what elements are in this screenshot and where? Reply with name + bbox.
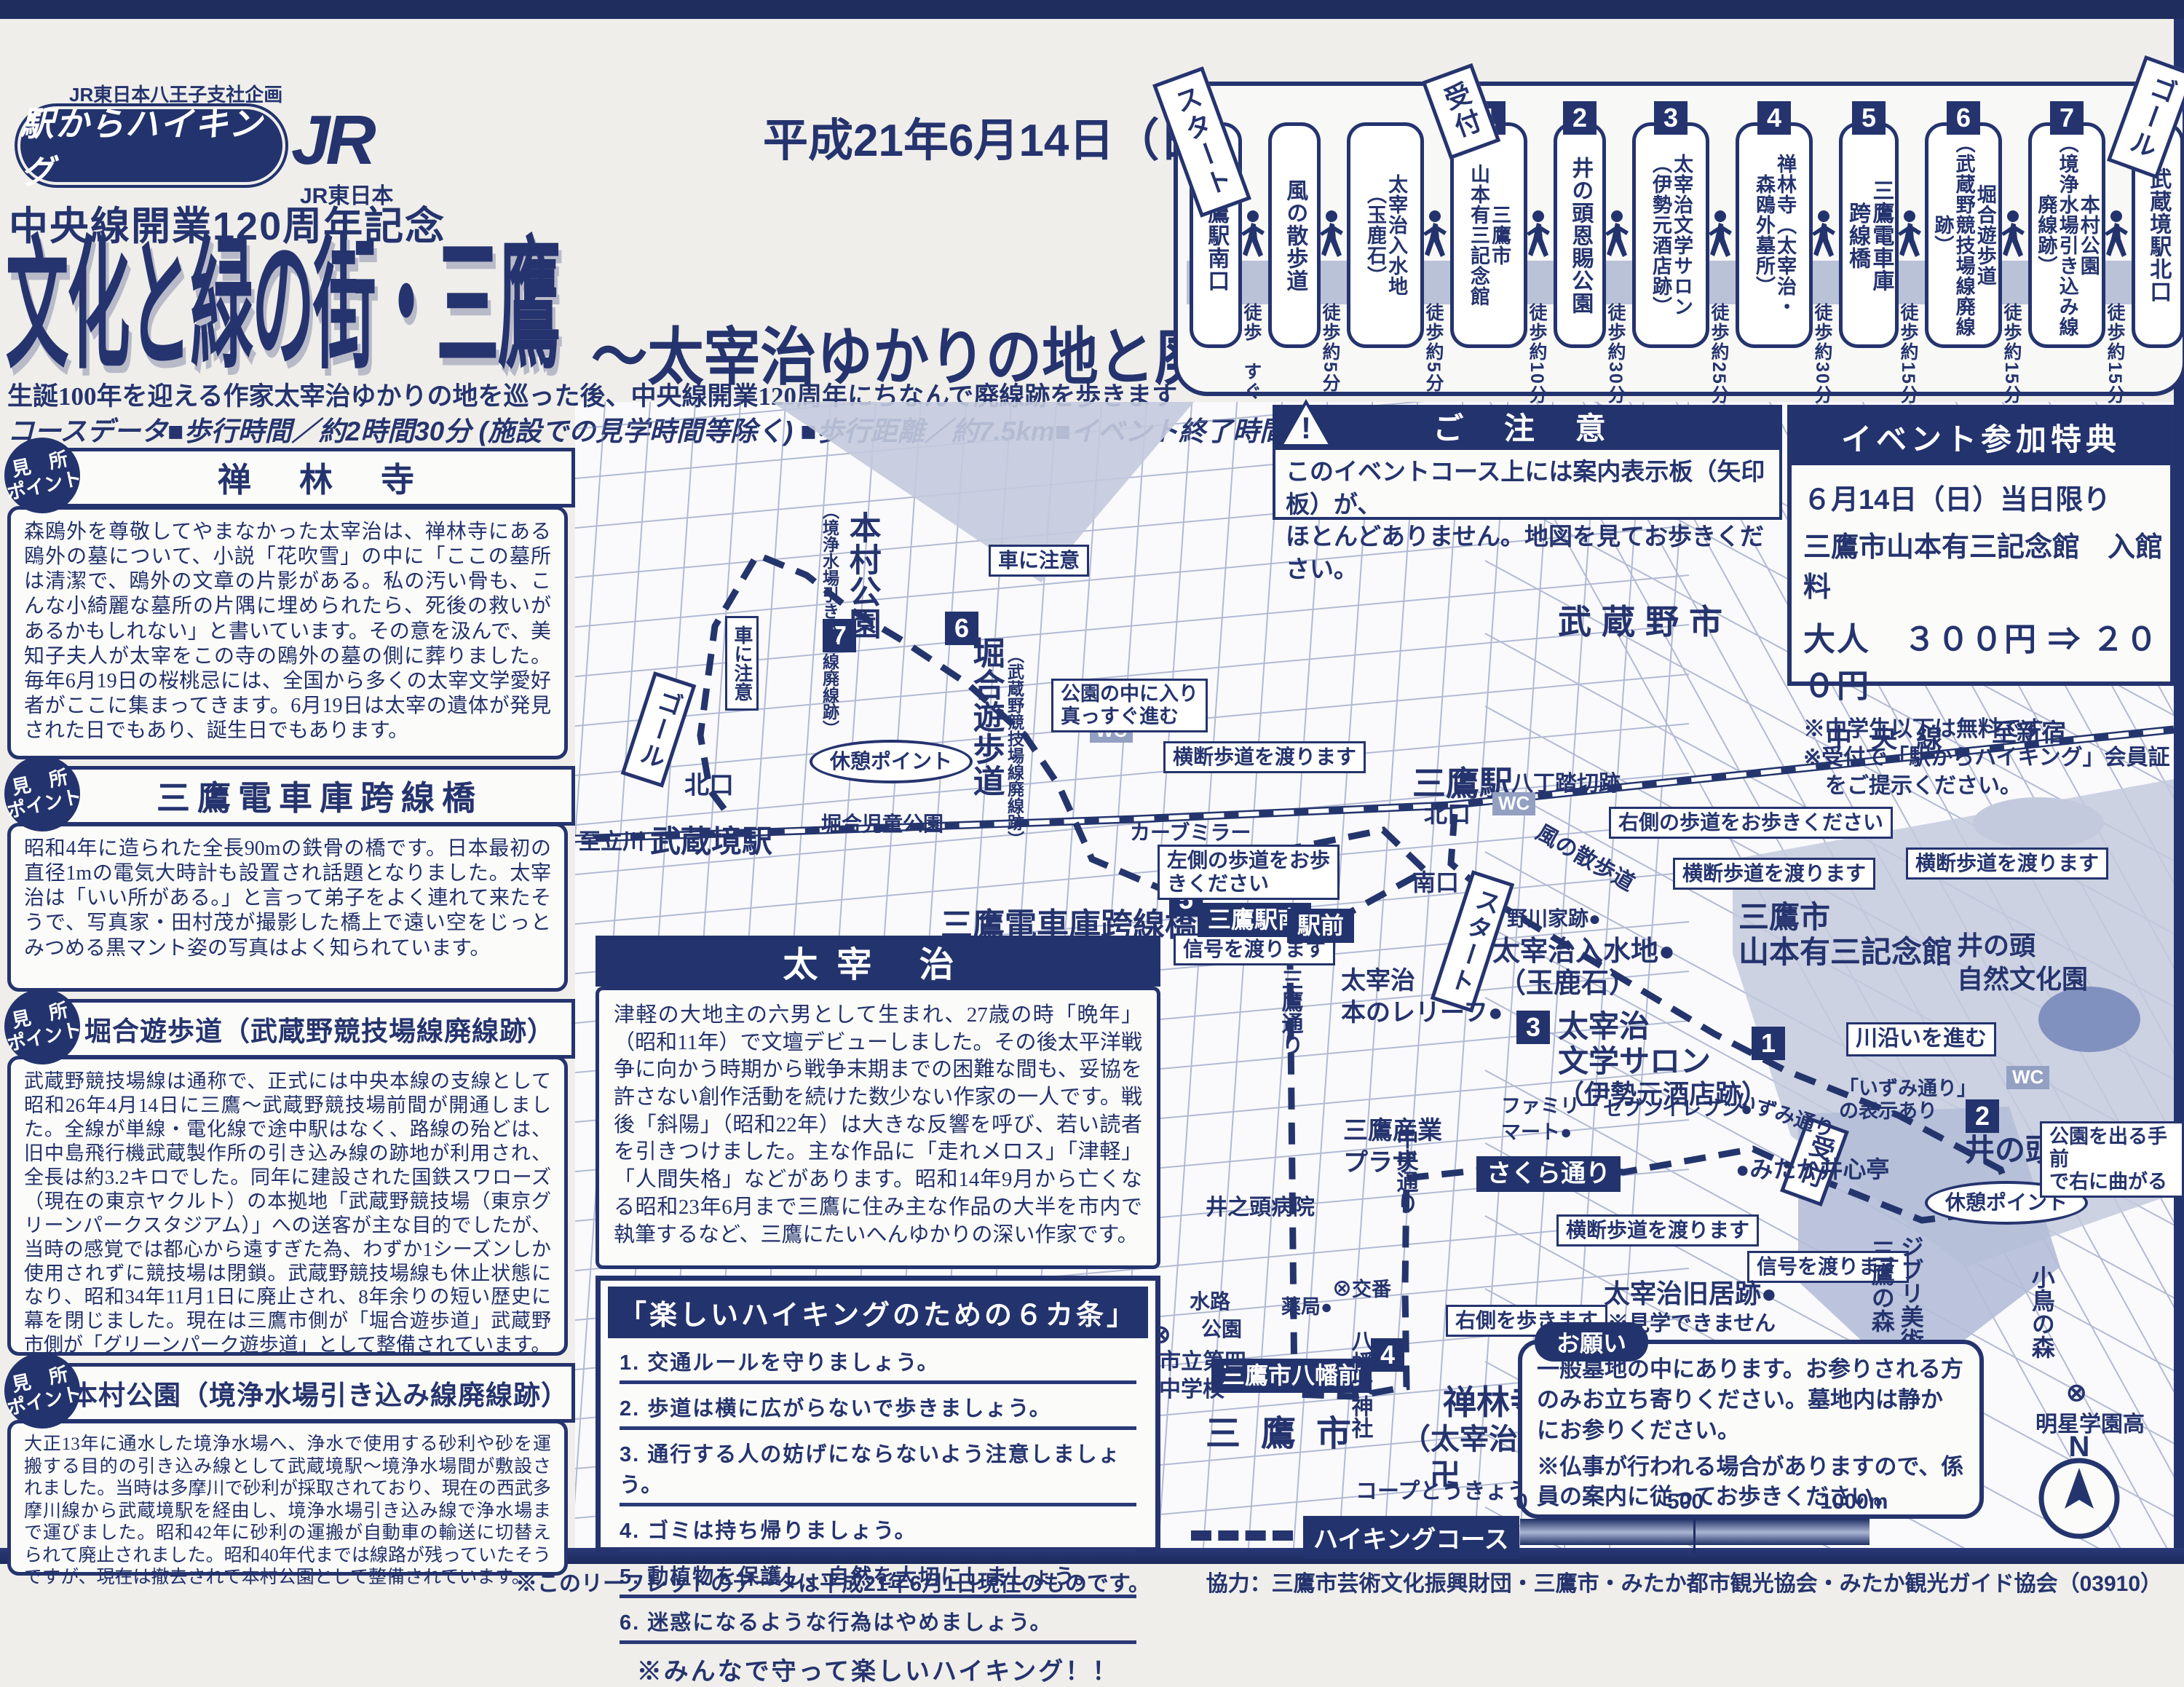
hiking-rule: 1. 交通ルールを守りましょう。 [620, 1338, 1136, 1384]
route-walk-time: 徒歩約15分 [2102, 303, 2128, 412]
map-label: 北口 [684, 772, 734, 800]
map-label: 横断歩道を渡ります [1163, 741, 1366, 773]
section-header: 三鷹電車庫跨線橋 [64, 766, 575, 826]
map-label: 野川家跡● [1507, 907, 1601, 931]
map-label: ファミリー [1501, 1095, 1599, 1118]
route-walk-time: 徒歩約15分 [1998, 303, 2025, 412]
map-label: 駅前 [1287, 909, 1354, 943]
map-label: 車に注意 [989, 545, 1089, 577]
section-body: 武蔵野競技場線は通称で、正式には中央本線の支線として昭和26年4月14日に三鷹〜… [7, 1056, 568, 1356]
route-walk-time: 徒歩約5分 [1317, 303, 1343, 412]
route-stop-label: 堀合遊歩道 （武蔵野競技場線廃線跡） [1931, 126, 1995, 344]
park-north [1973, 797, 2104, 848]
route-stop: 堀合遊歩道 （武蔵野競技場線廃線跡）6 [1925, 122, 2002, 348]
map-label: 八幡大神社 [1347, 1330, 1372, 1439]
map-label: カーブミラー [1130, 821, 1251, 845]
walker-icon [1703, 210, 1735, 261]
route-stop-number: 7 [2050, 101, 2084, 135]
route-stop-label: 太宰治文学サロン （伊勢元酒店跡） [1650, 154, 1692, 317]
credit-note: ※このリーフレットのデータは平成21年6月1日現在のものです。 [515, 1572, 1150, 1596]
route-walk-time: 徒歩約30分 [1809, 303, 1835, 412]
map-label: 太宰治 [1558, 1009, 1650, 1044]
walker-icon [1995, 210, 2027, 261]
route-stop-label: 三鷹市 山本有三記念館 [1468, 164, 1510, 307]
map-label: 井の頭 [1957, 931, 2035, 960]
map-label: 本村公園 [843, 511, 880, 639]
scale-bar-tick [1693, 1519, 1696, 1554]
route-walk-segment: 徒歩約15分 [1995, 210, 2028, 412]
route-stop-label: 風の散歩道 [1283, 179, 1306, 292]
map-label: 堀合遊歩道 [967, 636, 1004, 797]
cemetery-request-body: 一般墓地の中にあります。お参りされる方のみお立ち寄りください。墓地内は静かにお参… [1537, 1356, 1963, 1443]
route-stop-label: 禅林寺（太宰治・ 森鴎外墓所） [1753, 154, 1795, 317]
credit-cooperation: 協力：三鷹市芸術文化振興財団・三鷹市・みたか都市観光協会・みたか観光ガイド協会（… [1206, 1572, 2162, 1596]
section-header: 禅 林 寺 [64, 448, 575, 507]
route-stop: 太宰治文学サロン （伊勢元酒店跡）3 [1632, 122, 1709, 348]
route-walk-segment: 徒歩約5分 [1313, 210, 1347, 412]
route-stop-number: 2 [1563, 101, 1597, 135]
route-walk-time: 徒歩 すぐ [1238, 303, 1265, 412]
svg-text:!: ! [1301, 411, 1311, 445]
notice-body: このイベントコース上には案内表示板（矢印板）が、 ほとんどありません。地図を見て… [1273, 447, 1782, 520]
map-label: ⊗交番 [1332, 1279, 1391, 1301]
hiking-rule: 3. 通行する人の妨げにならないよう注意しましょう。 [620, 1430, 1136, 1506]
map-label: 山本有三記念館 [1738, 935, 1952, 970]
hiking-course-dash-sample [1191, 1530, 1293, 1541]
hiking-rules-title: 「楽しいハイキングのための６カ条」 [608, 1287, 1148, 1338]
map-label: 中央通り [1392, 1127, 1417, 1214]
route-walk-segment: 徒歩約30分 [1599, 210, 1632, 412]
map-label: マート● [1501, 1121, 1572, 1144]
event-benefit-box: イベント参加特典 ６月14日（日）当日限り 三鷹市山本有三記念館 入館料 大人 … [1787, 405, 2175, 686]
map-label: 中学校 [1159, 1378, 1224, 1403]
warning-triangle-icon: ! [1278, 399, 1334, 450]
hiking-rules-list: 1. 交通ルールを守りましょう。2. 歩道は横に広がらないで歩きましょう。3. … [601, 1338, 1155, 1644]
section-body: 大正13年に通水した境浄水場へ、浄水で使用する砂利や砂を運搬する目的の引き込み線… [7, 1420, 568, 1576]
route-walk-time: 徒歩約15分 [1895, 303, 1921, 412]
hiking-course-legend: ハイキングコース [1303, 1516, 1519, 1559]
map-label: 川沿いを進む [1846, 1022, 1996, 1056]
route-stop-label: 太宰治入水地 （玉鹿石） [1364, 174, 1406, 296]
map-label: さくら通り [1476, 1156, 1621, 1192]
route-stop-label: 三鷹電車庫 跨線橋 [1845, 179, 1893, 292]
map-label: 文学サロン [1558, 1044, 1711, 1079]
dazai-box-title: 太宰 治 [596, 936, 1160, 987]
section-header: 本村公園（境浄水場引き込み線廃線跡） [64, 1363, 575, 1423]
route-stop: 三鷹市 山本有三記念館1 [1450, 122, 1527, 348]
map-label: セブンイレブン● [1603, 1098, 1752, 1121]
map-label: 右側の歩道をお歩きください [1609, 807, 1893, 839]
map-label: WC [2006, 1066, 2049, 1089]
route-stop-label: 武蔵境駅北口 [2146, 167, 2169, 303]
scale-500: 500 [1667, 1490, 1704, 1514]
route-stop-label: 井の頭恩賜公園 [1568, 157, 1591, 315]
route-walk-time: 徒歩約10分 [1524, 303, 1550, 412]
map-label: 三鷹通り [1277, 968, 1302, 1056]
dazai-box-body: 津軽の大地主の六男として生まれ、27歳の時「晩年」（昭和11年）で文壇デビューし… [596, 987, 1160, 1269]
benefit-notes: ※中学生以下は無料です ※受付で「駅からハイキング」会員証 をご提示ください。 [1803, 715, 2170, 800]
map-label: 小鳥の森 [2028, 1265, 2055, 1359]
map-label: 三鷹の森 [1868, 1239, 1895, 1332]
route-walk-segment: 徒歩約30分 [1805, 210, 1839, 412]
route-stop-label: 本村公園 （境浄水場引き込み線廃線跡） [2035, 126, 2098, 344]
map-label: 車に注意 [725, 616, 759, 711]
map-label: 南口 [1412, 869, 1459, 896]
map-label: 休憩ポイント [810, 740, 973, 783]
walker-icon [2099, 210, 2131, 261]
map-label: 4 [1371, 1338, 1404, 1372]
map-label: 横断歩道を渡ります [1556, 1214, 1759, 1247]
hiking-rules-box: 「楽しいハイキングのための６カ条」 1. 交通ルールを守りましょう。2. 歩道は… [596, 1276, 1160, 1552]
route-walk-time: 徒歩約5分 [1420, 303, 1447, 412]
section-body: 森鴎外を尊敬してやまなかった太宰治は、禅林寺にある鴎外の墓について、小説「花吹雪… [7, 506, 568, 759]
hiking-rule: 4. ゴミは持ち帰りましょう。 [620, 1506, 1136, 1552]
scale-1000m: 1000m [1820, 1490, 1888, 1514]
map-label: 横断歩道を渡ります [1673, 858, 1875, 890]
route-stop: 太宰治入水地 （玉鹿石） [1347, 122, 1424, 348]
walker-icon [1599, 210, 1631, 261]
route-walk-time: 徒歩約30分 [1602, 303, 1629, 412]
credits-line: ※このリーフレットのデータは平成21年6月1日現在のものです。 協力：三鷹市芸術… [0, 1565, 2162, 1597]
map-label: 武蔵境駅 [650, 824, 772, 859]
map-label: （玉鹿石） [1498, 968, 1637, 1000]
walker-icon [1417, 210, 1449, 261]
map-label: 八丁踏切跡 [1511, 772, 1621, 797]
map-label: 市立第四 [1159, 1350, 1246, 1375]
event-benefit-title: イベント参加特典 [1792, 409, 2170, 465]
route-walk-time: 徒歩約25分 [1706, 303, 1732, 412]
map-label: 太宰治入水地● [1492, 936, 1675, 968]
map-label: 「いずみ通り」 の表示あり [1839, 1078, 1977, 1123]
map-label: 公園 [1201, 1318, 1242, 1341]
pond [2038, 987, 2140, 1052]
cemetery-request-note: ※仏事が行われる場合がありますので、係員の案内に従ってお歩きください。 [1537, 1452, 1965, 1513]
walker-icon [1235, 210, 1267, 261]
map-label: 太宰治 [1341, 967, 1415, 995]
scale-zero: 0 [1516, 1490, 1528, 1514]
walker-icon [1314, 210, 1346, 261]
map-label: （武蔵野競技場線廃線跡） [1005, 647, 1024, 848]
benefit-venue: 三鷹市山本有三記念館 入館料 [1803, 524, 2170, 604]
map-label: 三鷹市 [1738, 900, 1830, 935]
walker-icon [1892, 210, 1924, 261]
hiking-rule: 6. 迷惑になるような行為はやめましょう。 [620, 1598, 1136, 1644]
notice-title: ご 注 意 [1273, 405, 1782, 447]
map-label: 明星学園高 [2035, 1413, 2145, 1438]
route-stop-number: 3 [1654, 101, 1688, 135]
benefit-date: ６月14日（日）当日限り [1803, 477, 2170, 517]
map-label: 至立川 [579, 830, 644, 856]
hiking-rules-footer: ※みんなで守って楽しいハイキング！！ [601, 1644, 1155, 1687]
map-label: 井之頭病院 [1206, 1196, 1315, 1221]
map-label: ●みたか井心亭 [1736, 1156, 1889, 1183]
route-walk-segment: 徒歩約5分 [1417, 210, 1450, 412]
compass-icon: N [2041, 1431, 2117, 1536]
section-header: 堀合遊歩道（武蔵野競技場線廃線跡） [64, 999, 575, 1059]
route-stop-number: 6 [1947, 101, 1980, 135]
route-walk-segment: 徒歩約25分 [1702, 210, 1736, 412]
map-label: 武蔵野市 [1558, 603, 1733, 641]
route-stop: 三鷹電車庫 跨線橋5 [1839, 122, 1899, 348]
map-label: ⊗ [2066, 1379, 2087, 1407]
map-label: 北口 [1424, 801, 1471, 828]
map-label: 薬局● [1281, 1296, 1332, 1319]
route-stop: 禅林寺（太宰治・ 森鴎外墓所）4 [1736, 122, 1813, 348]
map-label: 左側の歩道をお歩 きください [1158, 845, 1340, 900]
benefit-price: 大人 ３００円 ⇒ ２００円 [1803, 613, 2170, 706]
route-walk-segment: 徒歩約15分 [1891, 210, 1925, 412]
route-walk-segment: 徒歩約10分 [1520, 210, 1554, 412]
route-walk-segment: 徒歩約15分 [2098, 210, 2132, 412]
route-stop-number: 4 [1757, 101, 1791, 135]
cemetery-request-box: 一般墓地の中にあります。お参りされる方のみお立ち寄りください。墓地内は静かにお参… [1518, 1340, 1984, 1519]
route-walk-segment: 徒歩 すぐ [1235, 210, 1268, 412]
route-stop-number: 5 [1852, 101, 1886, 135]
walker-icon [1806, 210, 1838, 261]
map-label: 本のレリーフ● [1341, 999, 1503, 1027]
request-label: お願い [1535, 1322, 1648, 1362]
section-body: 昭和4年に造られた全長90mの鉄骨の橋です。日本最初の直径1mの電気大時計も設置… [7, 823, 568, 992]
map-label: 堀合児童公園 [821, 813, 943, 836]
map-label: 自然文化園 [1957, 964, 2088, 994]
map-label: 公園の中に入り 真っすぐ進む [1051, 679, 1208, 732]
map-label: 水路 [1190, 1290, 1230, 1313]
route-stop: 本村公園 （境浄水場引き込み線廃線跡）7 [2028, 122, 2105, 348]
map-label: 太宰治旧居跡● [1604, 1279, 1777, 1308]
walker-icon [1521, 210, 1553, 261]
hiking-rule: 2. 歩道は横に広がらないで歩きましょう。 [620, 1384, 1136, 1430]
map-label: 公園を出る手前 で右に曲がる [2040, 1121, 2184, 1198]
map-label: コープとうきょう [1356, 1479, 1529, 1505]
map-label: （境浄水場引き込み線廃線跡） [820, 502, 839, 737]
map-label: 1 [1752, 1027, 1785, 1060]
map-label: 横断歩道を渡ります [1906, 848, 2108, 880]
map-label: 3 [1516, 1011, 1550, 1044]
